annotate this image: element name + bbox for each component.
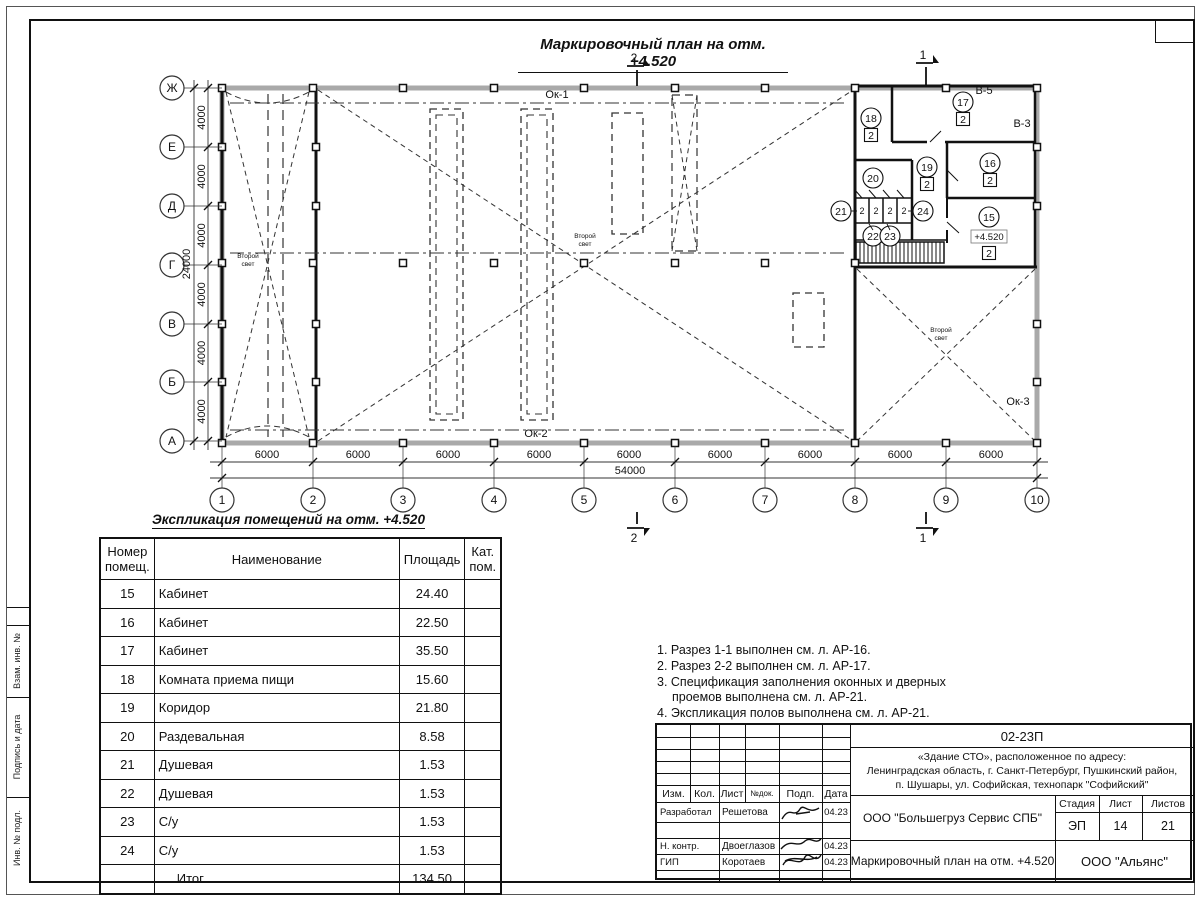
svg-text:2: 2: [924, 179, 930, 191]
svg-text:17: 17: [957, 97, 969, 109]
svg-text:15: 15: [983, 212, 995, 224]
room-schedule-table: Номер помещ. Наименование Площадь Кат. п…: [99, 537, 502, 895]
svg-text:свет: свет: [934, 335, 947, 342]
axis-col-label: 7: [762, 493, 769, 507]
tb-name-developed: Решетова: [719, 802, 779, 822]
tb-name-ncontr: Двоеглазов: [719, 838, 779, 854]
note-line: 4. Экспликация полов выполнена см. л. АР…: [657, 706, 946, 722]
svg-text:2: 2: [868, 130, 874, 142]
table-row: 16Кабинет22.50: [100, 608, 501, 637]
svg-text:19: 19: [921, 162, 933, 174]
tb-name-gip: Коротаев: [719, 854, 779, 870]
axis-col-label: 2: [310, 493, 317, 507]
tb-col-kol: Кол.: [690, 785, 719, 802]
dim-4000: 4000: [196, 223, 208, 247]
axis-row-label: А: [168, 434, 176, 448]
svg-text:2: 2: [859, 206, 864, 216]
tb-role-ncontr: Н. контр.: [657, 838, 719, 854]
signature-ncontr-gip: [779, 835, 823, 871]
elevation-mark: +4.520: [971, 230, 1007, 243]
side-stamp-label: Инв. № подл.: [10, 793, 24, 883]
window-band-ok3: Ок-3: [1006, 396, 1029, 408]
tb-date-gip: 04.23: [822, 854, 850, 870]
tb-role-developed: Разработал: [657, 802, 719, 822]
section-2-top: 2: [631, 51, 638, 65]
svg-text:Второй: Второй: [930, 326, 952, 334]
dim-6000: 6000: [436, 449, 460, 461]
svg-text:свет: свет: [241, 261, 254, 268]
dim-6000: 6000: [798, 449, 822, 461]
dim-54000: 54000: [615, 465, 646, 477]
tb-stage-value: ЭП: [1055, 812, 1099, 840]
tb-date-ncontr: 04.23: [822, 838, 850, 854]
axis-col-label: 3: [400, 493, 407, 507]
svg-text:20: 20: [867, 173, 879, 185]
section-2-bottom: 2: [631, 531, 638, 545]
note-line: 3. Спецификация заполнения оконных и две…: [657, 675, 946, 691]
table-row: 19Коридор21.80: [100, 694, 501, 723]
dim-4000: 4000: [196, 341, 208, 365]
col-header-area: Площадь: [399, 538, 465, 580]
svg-text:2: 2: [960, 114, 966, 126]
axis-col-label: 1: [219, 493, 226, 507]
note-line: 2. Разрез 2-2 выполнен см. л. АР-17.: [657, 659, 946, 675]
dim-6000: 6000: [888, 449, 912, 461]
dim-4000: 4000: [196, 164, 208, 188]
axis-col-label: 6: [672, 493, 679, 507]
tb-col-doc: №док.: [745, 785, 779, 802]
svg-text:Второй: Второй: [237, 252, 259, 260]
tb-doc-number: 02-23П: [850, 725, 1194, 747]
tb-sheets-label: Листов: [1142, 795, 1194, 812]
svg-text:+4.520: +4.520: [974, 232, 1003, 243]
axis-row-label: Д: [168, 199, 176, 213]
tb-stage-label: Стадия: [1055, 795, 1099, 812]
dim-6000: 6000: [708, 449, 732, 461]
svg-text:16: 16: [984, 158, 996, 170]
axis-row-label: Г: [169, 258, 176, 272]
section-1-top: 1: [920, 48, 927, 62]
tb-sheet-label: Лист: [1099, 795, 1142, 812]
tb-col-izm: Изм.: [657, 785, 690, 802]
dim-4000: 4000: [196, 399, 208, 423]
tb-date-developed: 04.23: [822, 802, 850, 822]
tb-sheet-value: 14: [1099, 812, 1142, 840]
table-row: 20Раздевальная8.58: [100, 722, 501, 751]
tb-col-list: Лист: [719, 785, 745, 802]
door-mark-b5: В-5: [975, 85, 992, 97]
svg-text:18: 18: [865, 113, 877, 125]
table-total-row: Итог134.50: [100, 865, 501, 894]
tb-org: ООО "Альянс": [1055, 840, 1194, 882]
col-header-number: Номер помещ.: [100, 538, 154, 580]
tb-sheets-value: 21: [1142, 812, 1194, 840]
axis-row-label: В: [168, 317, 176, 331]
tb-col-data: Дата: [822, 785, 850, 802]
tb-drawing-title: Маркировочный план на отм. +4.520: [850, 840, 1055, 882]
svg-text:23: 23: [884, 231, 896, 243]
svg-text:21: 21: [835, 206, 847, 218]
dim-6000: 6000: [979, 449, 1003, 461]
dim-24000: 24000: [181, 249, 193, 280]
axis-col-label: 9: [943, 493, 950, 507]
note-line: 1. Разрез 1-1 выполнен см. л. АР-16.: [657, 643, 946, 659]
column-axes: 6000 6000 6000 6000 6000 6000 6000 6000 …: [210, 446, 1049, 512]
partition-walls: [855, 87, 1035, 243]
svg-text:2: 2: [901, 206, 906, 216]
svg-text:свет: свет: [578, 241, 591, 248]
drawing-sheet: Взам. инв. № Подпись и дата Инв. № подл.…: [0, 0, 1200, 900]
dim-4000: 4000: [196, 105, 208, 129]
window-band-ok1: Ок-1: [545, 89, 568, 101]
axis-row-label: Е: [168, 140, 176, 154]
table-row: 17Кабинет35.50: [100, 637, 501, 666]
row-axes: Ж Е Д Г В Б А 4000 4000 4: [160, 76, 222, 453]
svg-text:24: 24: [917, 206, 929, 218]
window-band-ok2: Ок-2: [524, 428, 547, 440]
dim-6000: 6000: [617, 449, 641, 461]
note-line: проемов выполнена см. л. АР-21.: [657, 690, 946, 706]
second-light-labels: Второйсвет Второйсвет Второйсвет: [237, 232, 952, 342]
svg-text:2: 2: [987, 175, 993, 187]
door-mark-b3: В-3: [1013, 118, 1030, 130]
table-row: 23С/у1.53: [100, 808, 501, 837]
dim-6000: 6000: [527, 449, 551, 461]
section-1-bottom: 1: [920, 531, 927, 545]
axis-col-label: 8: [852, 493, 859, 507]
axis-col-label: 5: [581, 493, 588, 507]
col-header-name: Наименование: [154, 538, 399, 580]
dim-6000: 6000: [255, 449, 279, 461]
table-row: 21Душевая1.53: [100, 751, 501, 780]
tb-object-address: «Здание СТО», расположенное по адресу: Л…: [850, 747, 1194, 795]
table-row: 15Кабинет24.40: [100, 580, 501, 609]
axis-col-label: 10: [1030, 493, 1044, 507]
table-title: Экспликация помещений на отм. +4.520: [152, 512, 425, 529]
floor-plan: Ж Е Д Г В Б А 4000 4000 4: [0, 0, 1200, 560]
signature-developed: [780, 803, 822, 823]
side-stamp-label: Взам. инв. №: [10, 616, 24, 706]
title-block: Изм. Кол. Лист №док. Подп. Дата Разработ…: [655, 723, 1192, 880]
table-row: 18Комната приема пищи15.60: [100, 665, 501, 694]
table-row: 24С/у1.53: [100, 836, 501, 865]
tb-col-podp: Подп.: [779, 785, 822, 802]
dim-4000: 4000: [196, 282, 208, 306]
general-notes: 1. Разрез 1-1 выполнен см. л. АР-16. 2. …: [657, 643, 946, 722]
col-header-cat: Кат. пом.: [465, 538, 501, 580]
svg-text:22: 22: [867, 231, 879, 243]
side-stamp-label: Подпись и дата: [10, 702, 24, 792]
axis-row-label: Б: [168, 375, 176, 389]
dim-6000: 6000: [346, 449, 370, 461]
axis-col-label: 4: [491, 493, 498, 507]
tb-company: ООО "Большегруз Сервис СПБ": [850, 795, 1055, 840]
svg-text:2: 2: [986, 248, 992, 260]
svg-text:2: 2: [887, 206, 892, 216]
window-band-centerlines: [230, 103, 848, 430]
svg-text:Второй: Второй: [574, 232, 596, 240]
svg-text:2: 2: [873, 206, 878, 216]
tb-role-gip: ГИП: [657, 854, 719, 870]
axis-row-label: Ж: [166, 81, 177, 95]
side-stamp-divider: [7, 607, 29, 608]
main-walls: [222, 86, 1037, 445]
table-row: 22Душевая1.53: [100, 779, 501, 808]
